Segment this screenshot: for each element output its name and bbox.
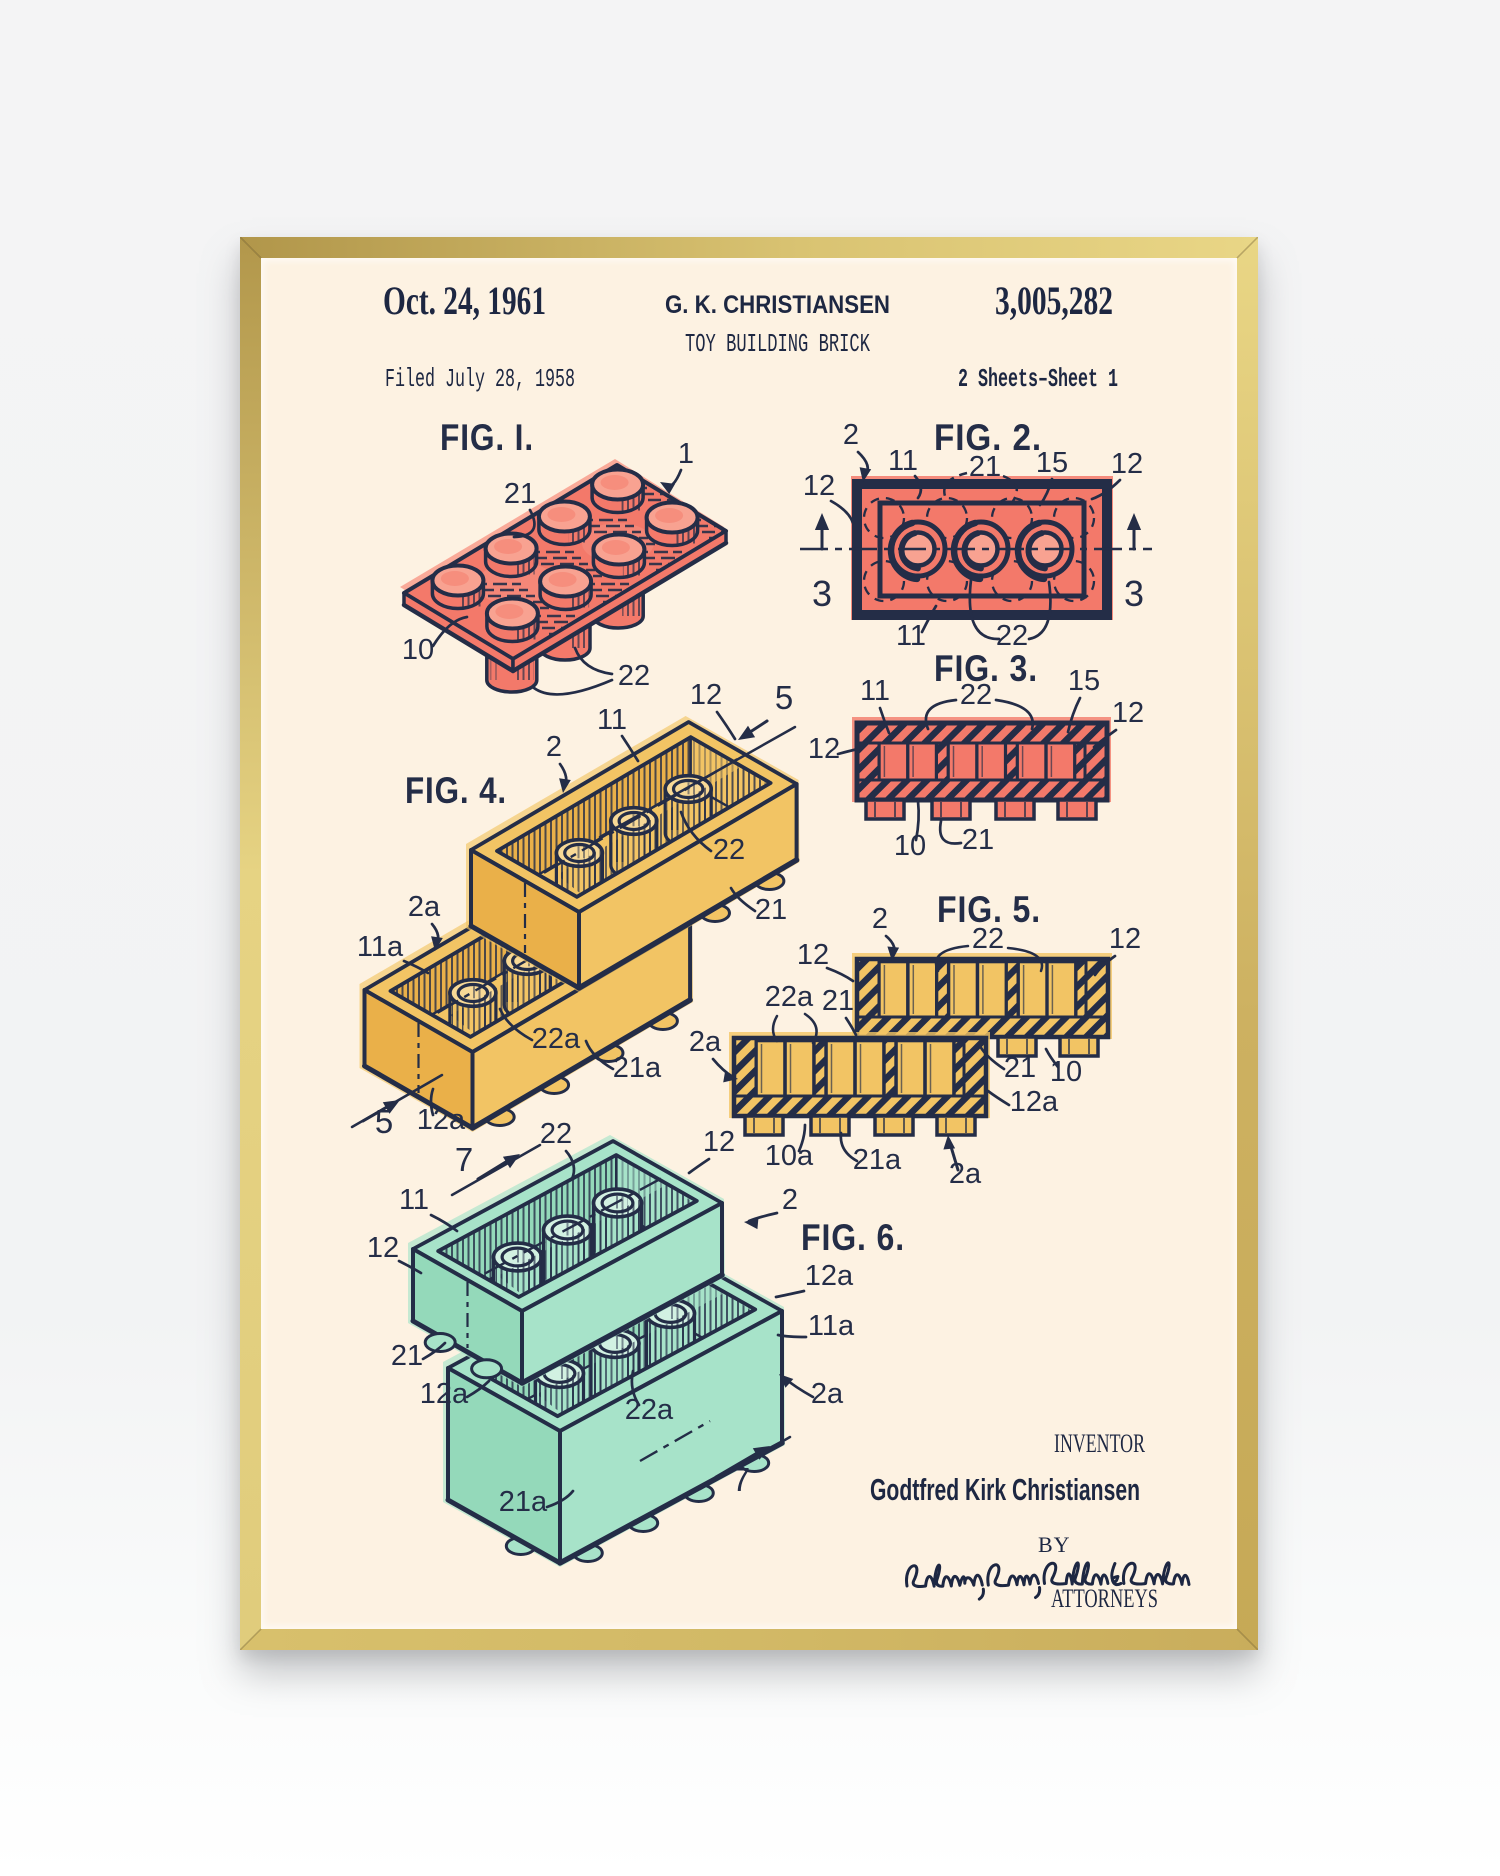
svg-text:11a: 11a — [357, 931, 404, 963]
svg-text:15: 15 — [1036, 447, 1068, 479]
svg-text:Filed July 28, 1958: Filed July 28, 1958 — [385, 364, 575, 394]
svg-text:12: 12 — [803, 470, 835, 502]
svg-text:12: 12 — [808, 733, 840, 765]
svg-text:21: 21 — [391, 1340, 423, 1372]
svg-text:2: 2 — [843, 419, 859, 451]
svg-text:12a: 12a — [1010, 1086, 1059, 1118]
svg-text:12: 12 — [1112, 697, 1144, 729]
svg-text:2 Sheets–Sheet 1: 2 Sheets–Sheet 1 — [958, 364, 1118, 394]
svg-text:21: 21 — [962, 824, 994, 856]
svg-text:22: 22 — [960, 679, 992, 711]
svg-text:G. K. CHRISTIANSEN: G. K. CHRISTIANSEN — [665, 291, 890, 319]
svg-text:10: 10 — [894, 830, 926, 862]
svg-text:12a: 12a — [417, 1104, 466, 1136]
svg-text:12: 12 — [703, 1126, 735, 1158]
svg-text:21: 21 — [822, 985, 854, 1017]
svg-text:11: 11 — [860, 675, 890, 707]
svg-text:22a: 22a — [532, 1023, 581, 1055]
svg-text:2a: 2a — [949, 1158, 982, 1190]
svg-text:FIG. I.: FIG. I. — [440, 417, 534, 458]
svg-text:12: 12 — [1111, 448, 1143, 480]
svg-text:11: 11 — [399, 1184, 429, 1216]
svg-text:12a: 12a — [805, 1260, 854, 1292]
svg-text:21a: 21a — [853, 1144, 902, 1176]
svg-text:1: 1 — [678, 438, 694, 470]
svg-text:11a: 11a — [808, 1310, 855, 1342]
svg-text:21: 21 — [1004, 1052, 1036, 1084]
svg-text:Oct. 24, 1961: Oct. 24, 1961 — [383, 278, 546, 323]
svg-text:2: 2 — [782, 1184, 798, 1216]
svg-text:10a: 10a — [765, 1140, 814, 1172]
svg-text:10: 10 — [402, 634, 434, 666]
svg-text:3,005,282: 3,005,282 — [995, 278, 1113, 323]
svg-text:22: 22 — [540, 1118, 572, 1150]
svg-text:TOY BUILDING BRICK: TOY BUILDING BRICK — [685, 329, 870, 359]
svg-text:12: 12 — [367, 1232, 399, 1264]
svg-text:12: 12 — [690, 679, 722, 711]
svg-text:12: 12 — [797, 939, 829, 971]
svg-text:Godtfred Kirk Christiansen: Godtfred Kirk Christiansen — [870, 1472, 1140, 1507]
svg-text:21a: 21a — [613, 1052, 662, 1084]
svg-text:22: 22 — [713, 834, 745, 866]
svg-text:22a: 22a — [625, 1394, 674, 1426]
svg-text:22a: 22a — [765, 981, 814, 1013]
svg-text:21: 21 — [755, 894, 787, 926]
svg-text:INVENTOR: INVENTOR — [1054, 1429, 1145, 1458]
svg-text:21: 21 — [504, 478, 536, 510]
svg-text:15: 15 — [1068, 665, 1100, 697]
svg-text:FIG. 6.: FIG. 6. — [801, 1217, 905, 1258]
svg-text:7: 7 — [455, 1141, 473, 1178]
svg-text:21a: 21a — [499, 1486, 548, 1518]
svg-text:3: 3 — [1124, 573, 1144, 614]
svg-text:22: 22 — [972, 923, 1004, 955]
svg-text:2a: 2a — [689, 1026, 722, 1058]
svg-text:11: 11 — [597, 704, 627, 736]
svg-text:BY: BY — [1038, 1532, 1071, 1557]
svg-text:22: 22 — [618, 660, 650, 692]
svg-text:11: 11 — [888, 445, 918, 477]
svg-text:12a: 12a — [420, 1378, 469, 1410]
svg-text:21: 21 — [969, 451, 1001, 483]
svg-text:2a: 2a — [811, 1378, 844, 1410]
svg-text:2a: 2a — [408, 891, 441, 923]
svg-text:2: 2 — [872, 903, 888, 935]
svg-text:5: 5 — [775, 679, 793, 716]
svg-text:2: 2 — [546, 731, 562, 763]
svg-text:3: 3 — [812, 573, 832, 614]
svg-text:11: 11 — [896, 620, 926, 652]
svg-text:FIG. 4.: FIG. 4. — [405, 770, 507, 811]
svg-text:12: 12 — [1109, 923, 1141, 955]
svg-text:ATTORNEYS: ATTORNEYS — [1051, 1584, 1158, 1613]
